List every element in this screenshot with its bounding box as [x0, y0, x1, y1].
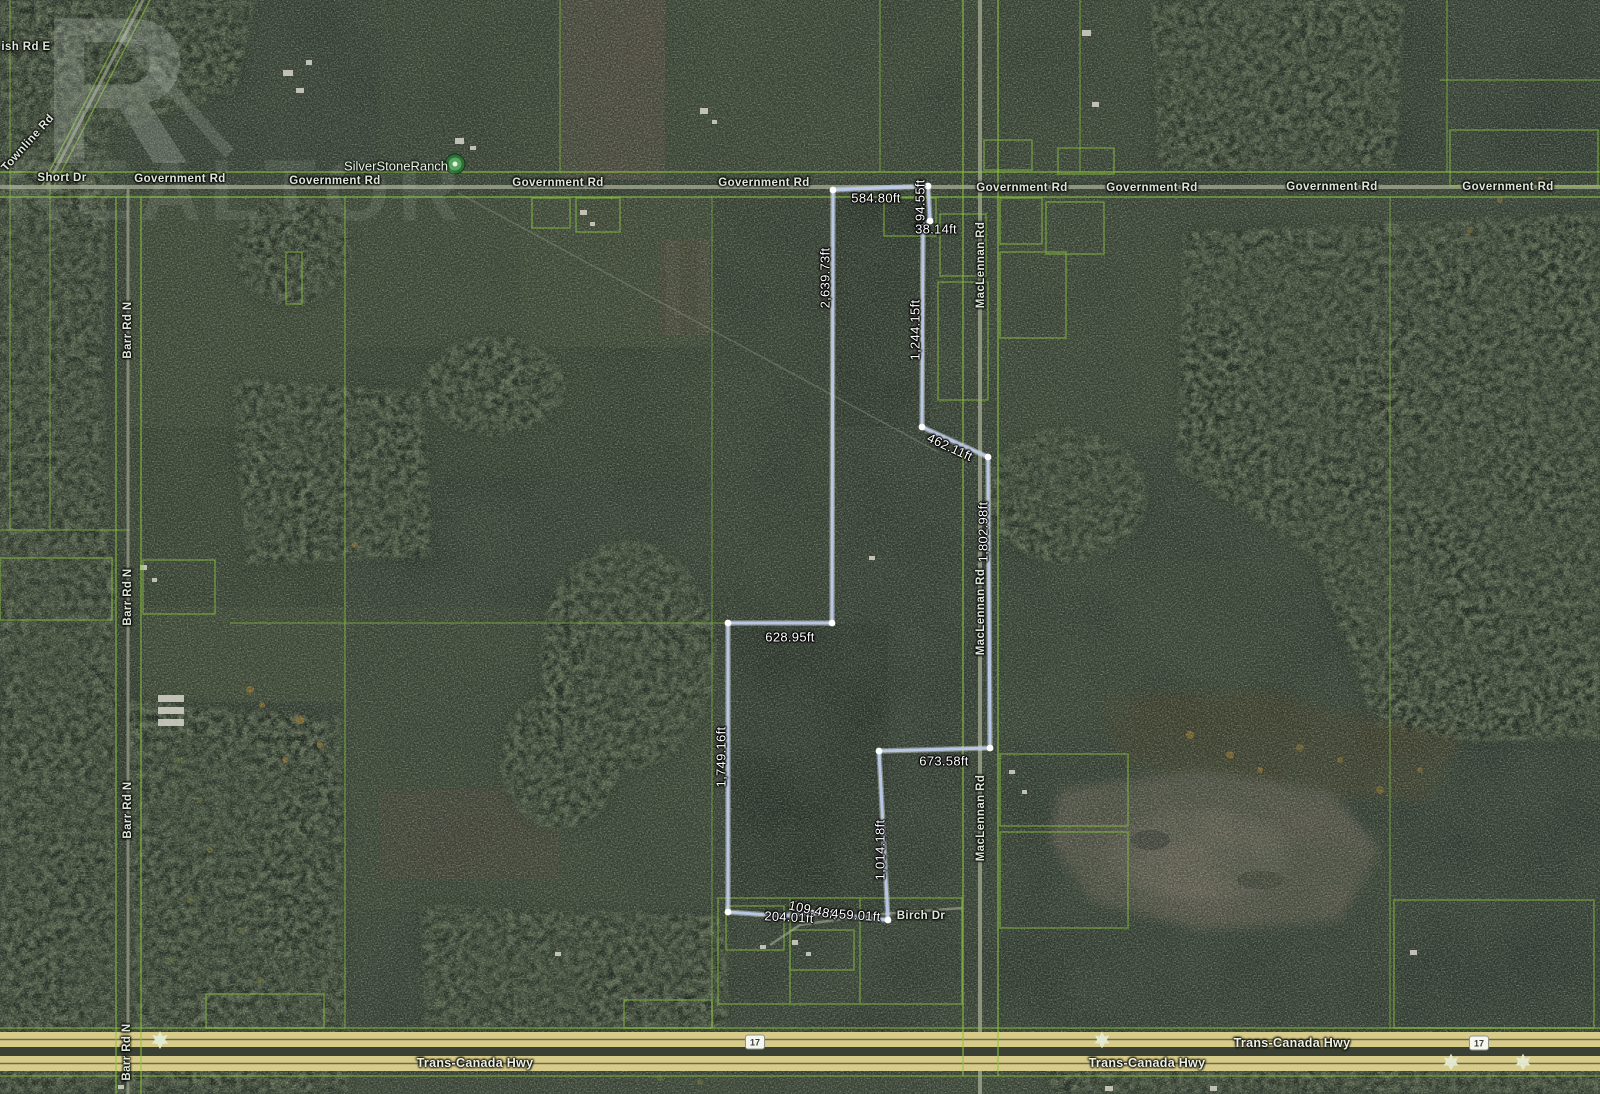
satellite-imagery — [0, 0, 1600, 1094]
poi-marker-silverstoneranch[interactable] — [445, 154, 465, 174]
satellite-map[interactable]: R REALTOR ish Rd ETownline RdShort DrGov… — [0, 0, 1600, 1094]
